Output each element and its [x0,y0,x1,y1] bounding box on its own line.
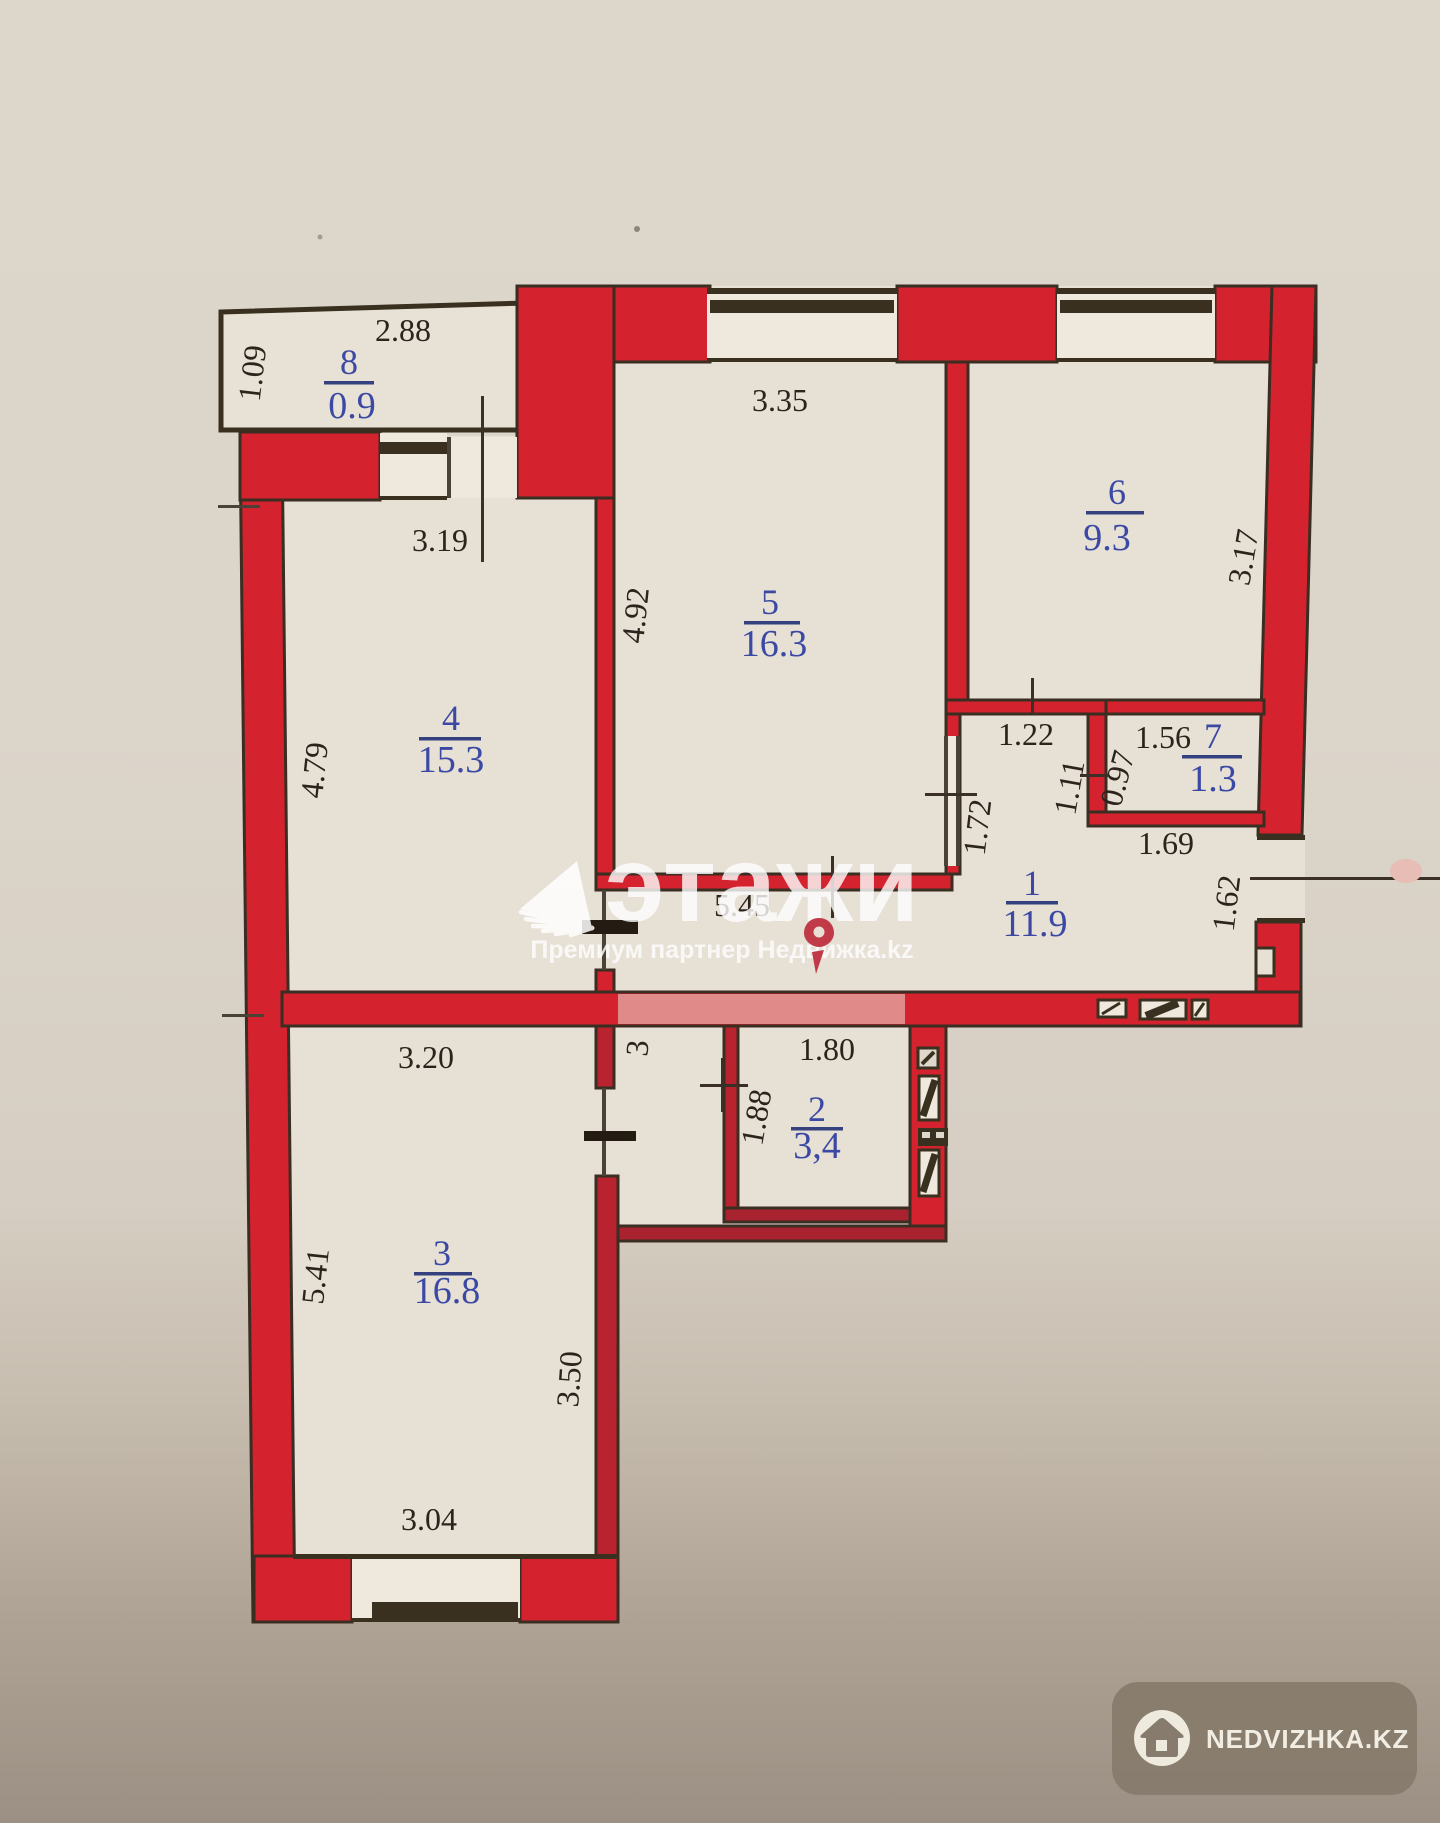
svg-text:1.22: 1.22 [998,716,1054,752]
svg-text:1.62: 1.62 [1205,873,1248,933]
svg-text:0.9: 0.9 [328,385,376,427]
svg-text:1.72: 1.72 [956,797,999,857]
svg-text:3.19: 3.19 [412,522,468,558]
svg-text:8: 8 [340,342,358,382]
svg-text:Премиум партнер Недвижка.kz: Премиум партнер Недвижка.kz [530,936,913,964]
svg-text:3.50: 3.50 [549,1350,589,1408]
svg-text:4: 4 [442,698,460,738]
svg-text:3.35: 3.35 [752,382,808,418]
svg-text:9.3: 9.3 [1083,517,1131,559]
svg-text:5.41: 5.41 [294,1246,336,1305]
svg-text:6: 6 [1108,472,1126,512]
svg-text:этажи: этажи [605,823,919,944]
svg-text:1.09: 1.09 [231,343,274,403]
svg-text:NEDVIZHKA.KZ: NEDVIZHKA.KZ [1206,1724,1409,1754]
svg-text:15.3: 15.3 [418,739,485,781]
svg-text:2.88: 2.88 [375,312,431,348]
svg-text:1.3: 1.3 [1189,758,1237,800]
svg-text:3.20: 3.20 [398,1039,454,1075]
svg-text:3.04: 3.04 [401,1501,457,1537]
svg-text:16.8: 16.8 [414,1270,481,1312]
svg-text:1.69: 1.69 [1138,825,1194,861]
svg-text:5: 5 [761,582,779,622]
svg-text:3: 3 [618,1039,655,1058]
svg-text:4.79: 4.79 [293,740,335,799]
svg-text:11.9: 11.9 [1002,903,1067,945]
svg-text:1.80: 1.80 [799,1031,855,1067]
svg-text:3: 3 [433,1233,451,1273]
svg-text:2: 2 [808,1089,826,1129]
svg-text:3,4: 3,4 [793,1125,841,1167]
svg-text:16.3: 16.3 [741,623,808,665]
svg-text:1: 1 [1023,863,1041,903]
svg-text:4.92: 4.92 [614,585,656,644]
svg-text:7: 7 [1204,716,1222,756]
svg-text:1.56: 1.56 [1135,719,1191,755]
